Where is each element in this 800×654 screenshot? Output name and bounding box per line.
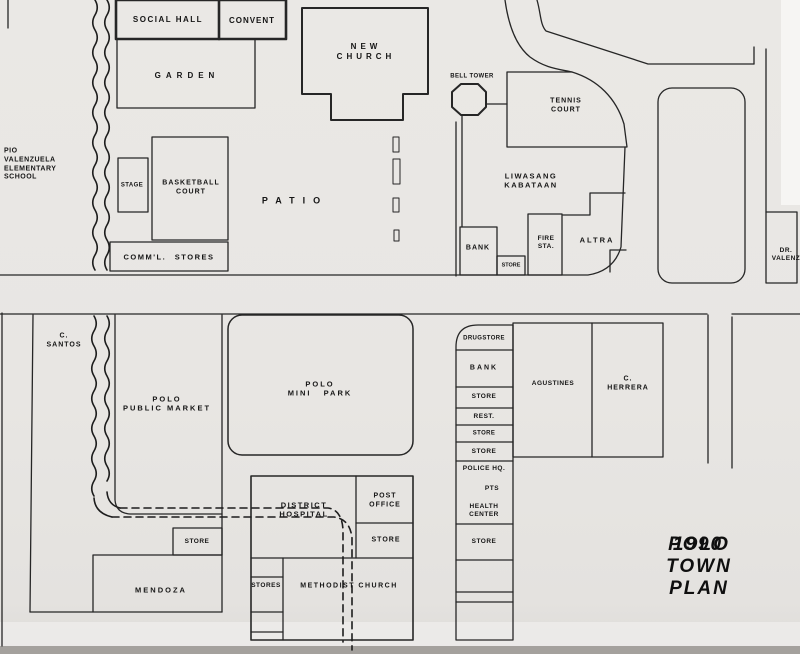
label-convent: CONVENT bbox=[229, 16, 275, 26]
scan-edge-bottom-light bbox=[0, 622, 800, 648]
label-drugstore: DRUGSTORE bbox=[463, 335, 505, 343]
label-store-row3: STORE bbox=[472, 448, 497, 456]
creek-bend bbox=[107, 492, 120, 508]
label-bell-tower: BELL TOWER bbox=[450, 73, 493, 81]
shape-store-strip-dividers bbox=[456, 350, 513, 602]
creek-line bbox=[105, 316, 110, 481]
label-bank-upper: BANK bbox=[466, 245, 490, 254]
label-pts: PTS bbox=[485, 485, 499, 493]
scan-edge-bottom-gray bbox=[0, 646, 800, 654]
shape-market-outline bbox=[115, 315, 222, 514]
shape-patio-post bbox=[393, 137, 399, 152]
label-store-row1: STORE bbox=[472, 393, 497, 401]
label-altra: ALTRA bbox=[580, 235, 615, 244]
scan-edge-right bbox=[781, 0, 800, 205]
shape-patio-post bbox=[394, 230, 399, 241]
shape-patio-post bbox=[393, 198, 399, 212]
creek-line bbox=[92, 316, 97, 496]
shape-c-santos-west bbox=[30, 315, 33, 612]
label-health-center: HEALTH CENTER bbox=[469, 503, 499, 519]
label-dr-valenzuela: DR. VALENZ bbox=[772, 247, 800, 263]
shape-bell-tower bbox=[452, 84, 486, 115]
shape-patio-post bbox=[393, 159, 400, 184]
shape-mendoza bbox=[93, 555, 222, 612]
shape-ne-block bbox=[658, 88, 745, 283]
label-stage: STAGE bbox=[121, 182, 143, 190]
label-tennis-court: TENNIS COURT bbox=[550, 97, 582, 115]
label-comml-stores: COMM'L. STORES bbox=[124, 252, 215, 261]
shape-altra-step bbox=[563, 193, 625, 215]
label-new-church: NEW CHURCH bbox=[337, 42, 396, 62]
label-basketball-court: BASKETBALL COURT bbox=[162, 179, 219, 197]
label-polo-mini-park: POLO MINI PARK bbox=[288, 380, 353, 399]
label-mendoza: MENDOZA bbox=[135, 585, 187, 594]
label-liwasang-kabataan: LIWASANG KABATAAN bbox=[504, 172, 557, 191]
label-agustines: AGUSTINES bbox=[532, 380, 574, 388]
label-district-hospital: DISTRICT HOSPITAL bbox=[279, 501, 328, 520]
label-police-hq: POLICE HQ. bbox=[463, 465, 506, 473]
shape-new-church bbox=[302, 8, 428, 120]
creek-line bbox=[93, 0, 98, 270]
label-social-hall: SOCIAL HALL bbox=[133, 15, 203, 25]
label-c-santos: C. SANTOS bbox=[46, 332, 81, 350]
label-store-row2: STORE bbox=[473, 430, 496, 438]
label-restaurant: REST. bbox=[474, 413, 495, 421]
label-hospital-store: STORE bbox=[372, 537, 401, 546]
label-store-row4: STORE bbox=[472, 538, 497, 546]
label-methodist-church: METHODIST CHURCH bbox=[300, 583, 398, 592]
label-fire-station: FIRE STA. bbox=[538, 235, 555, 251]
label-market-store: STORE bbox=[185, 538, 210, 546]
label-post-office: POST OFFICE bbox=[369, 492, 401, 510]
label-stores-strip: STORES bbox=[251, 582, 281, 590]
label-bank-lower: BANK bbox=[470, 365, 498, 374]
label-garden: GARDEN bbox=[155, 71, 220, 81]
shape-road-diagonal-north bbox=[537, 0, 754, 64]
label-c-herrera: C. HERRERA bbox=[607, 375, 649, 393]
creek-dashed-line bbox=[120, 508, 343, 642]
creek-line bbox=[105, 0, 110, 270]
label-polo-public-market: POLO PUBLIC MARKET bbox=[123, 395, 211, 414]
label-store-upper: STORE bbox=[502, 263, 521, 270]
town-plan-map: SOCIAL HALL CONVENT GARDEN NEW CHURCH BE… bbox=[0, 0, 800, 654]
label-patio: PATIO bbox=[262, 195, 328, 206]
map-title-name: POLO TOWN PLAN bbox=[649, 534, 750, 600]
label-elementary-school: PIO VALENZUELA ELEMENTARY SCHOOL bbox=[4, 148, 56, 183]
